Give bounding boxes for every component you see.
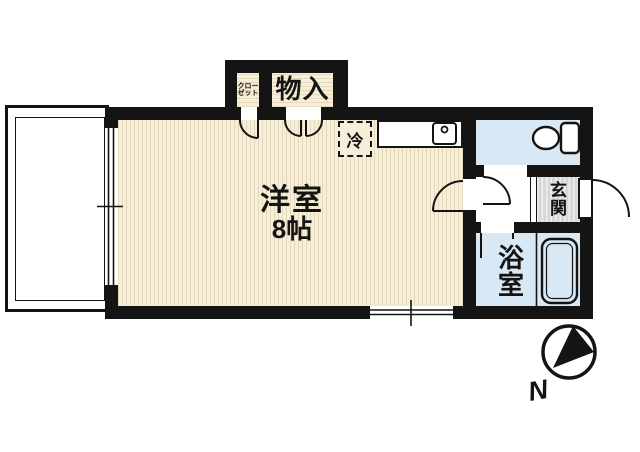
front-door-opening: [580, 180, 593, 217]
closet-label-line2: ゼット: [238, 90, 259, 97]
toilet-room: [476, 120, 580, 165]
wall-left-upper: [105, 118, 118, 128]
wall-closet-top: [225, 60, 348, 73]
room-label: 洋室 8帖: [192, 184, 392, 244]
fridge-label: 冷: [347, 127, 364, 152]
bathroom-label: 浴 室: [488, 241, 534, 303]
closet-label-line1: クロー: [238, 83, 259, 90]
wall-top: [105, 107, 593, 120]
room-door-opening: [463, 178, 476, 211]
closet-door-opening: [240, 107, 258, 120]
north-label: N: [526, 374, 551, 407]
refrigerator-space: 冷: [338, 121, 372, 157]
bathroom-char1: 浴: [498, 245, 524, 272]
storage-label: 物入: [272, 73, 333, 107]
bathroom-door-opening: [480, 222, 515, 233]
entrance-step-edge: [530, 177, 537, 222]
window-bottom: [370, 306, 453, 319]
wall-closet-right: [333, 70, 348, 107]
wall-closet-divider: [259, 70, 272, 107]
wall-closet-left: [225, 70, 237, 107]
entrance-char1: 玄: [550, 182, 567, 200]
toilet-door-opening: [483, 165, 528, 177]
wall-interior-vertical: [463, 120, 476, 306]
kitchen-counter: [377, 120, 463, 148]
compass-icon: N: [526, 326, 595, 407]
floor-plan: 冷 洋室 8帖 物入 クロー ゼット 玄 関 浴 室: [0, 0, 640, 452]
storage-door-opening: [285, 107, 322, 120]
closet-label: クロー ゼット: [237, 73, 259, 107]
wall-bottom: [105, 306, 593, 319]
balcony-rail-line: [15, 117, 105, 301]
hallway: [476, 177, 531, 222]
entrance-label: 玄 関: [537, 179, 580, 221]
room-name: 洋室: [260, 185, 324, 217]
window-left: [105, 128, 118, 285]
entrance-char2: 関: [550, 200, 567, 218]
room-size: 8帖: [272, 216, 312, 243]
bathroom-char2: 室: [498, 272, 524, 299]
